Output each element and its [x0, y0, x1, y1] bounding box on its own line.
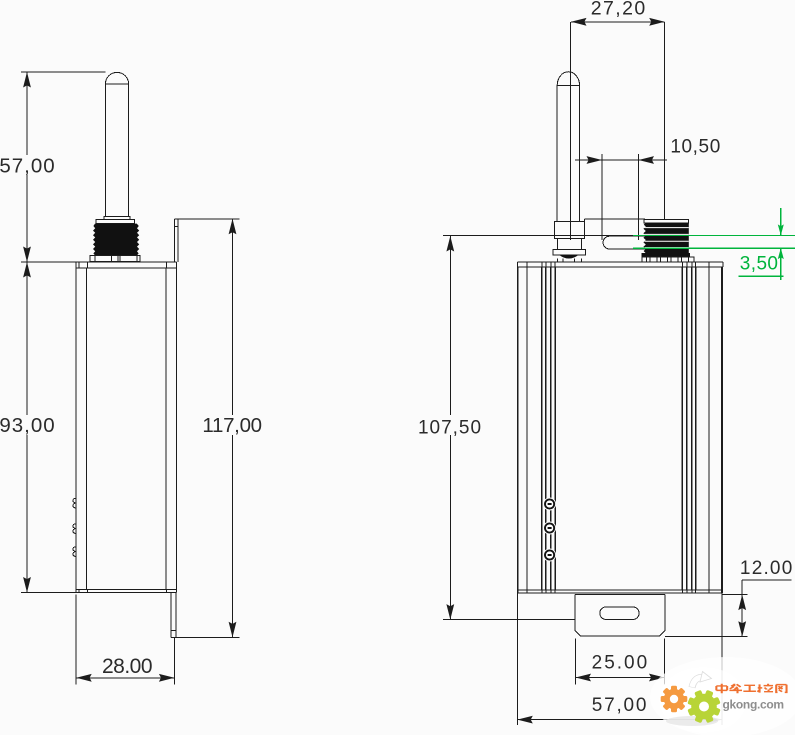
svg-text:10,50: 10,50: [670, 136, 721, 157]
svg-text:117,00: 117,00: [202, 414, 261, 437]
svg-text:25.00: 25.00: [592, 653, 650, 674]
svg-text:107,50: 107,50: [418, 418, 482, 439]
svg-text:27,20: 27,20: [591, 0, 647, 20]
svg-text:57,00: 57,00: [592, 695, 649, 716]
svg-text:28.00: 28.00: [102, 655, 152, 678]
svg-text:93,00: 93,00: [0, 414, 56, 437]
svg-text:3,50: 3,50: [740, 254, 779, 275]
svg-text:gkong.com: gkong.com: [723, 698, 784, 712]
svg-text:12.00: 12.00: [740, 558, 794, 579]
svg-text:57,00: 57,00: [0, 155, 56, 178]
